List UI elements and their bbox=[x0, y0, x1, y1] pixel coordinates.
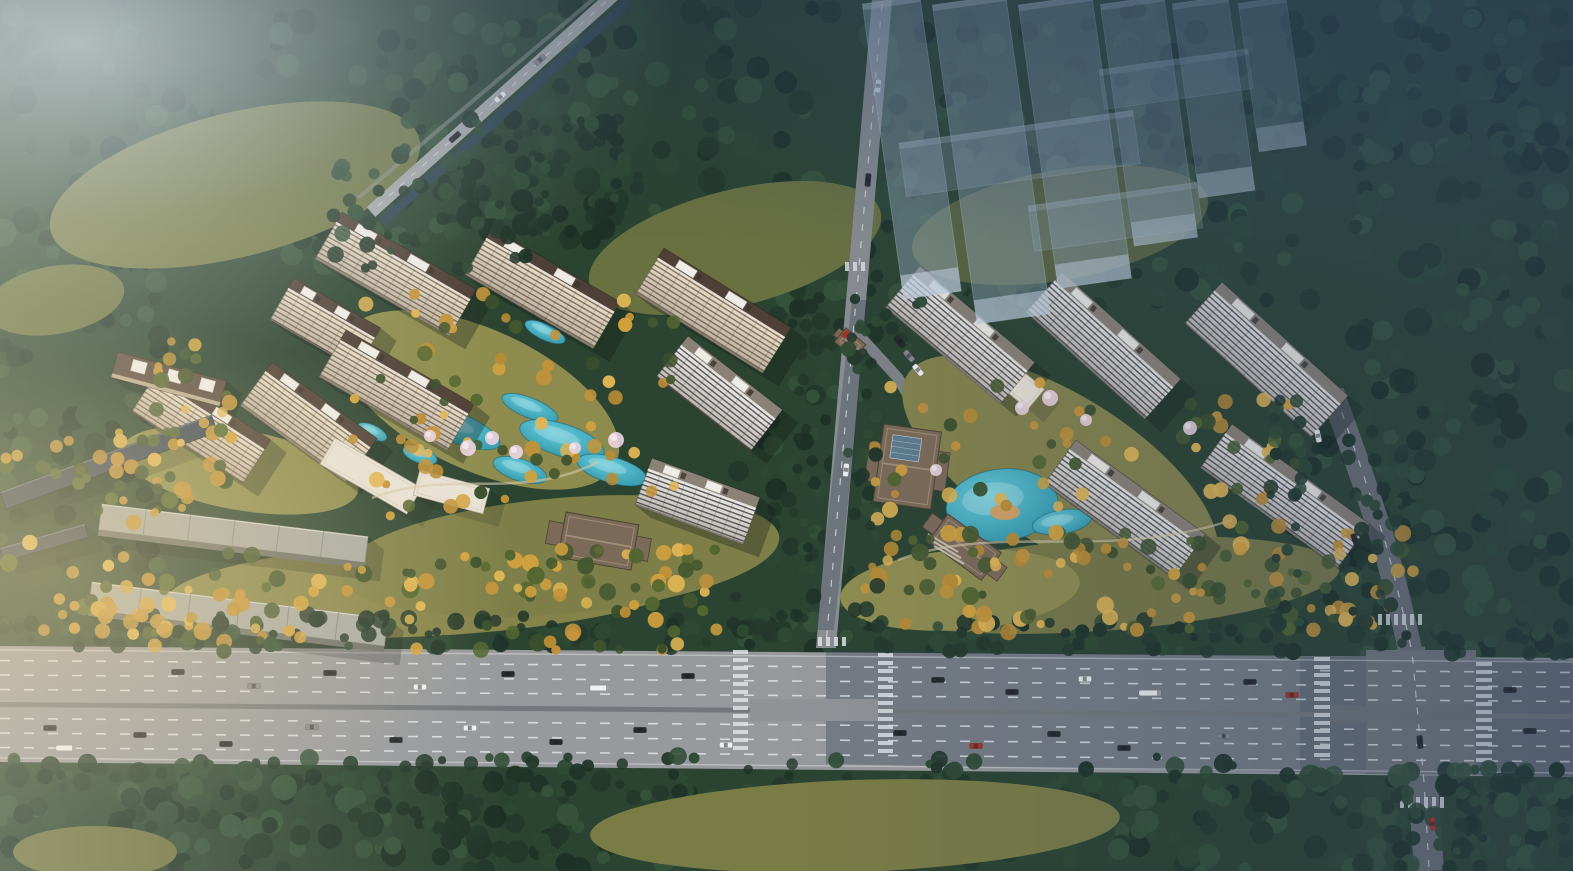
glare-bottom-left bbox=[0, 0, 1573, 871]
atmosphere-layer bbox=[0, 0, 1573, 871]
aerial-rendering-stage bbox=[0, 0, 1573, 871]
aerial-rendering bbox=[0, 0, 1573, 871]
